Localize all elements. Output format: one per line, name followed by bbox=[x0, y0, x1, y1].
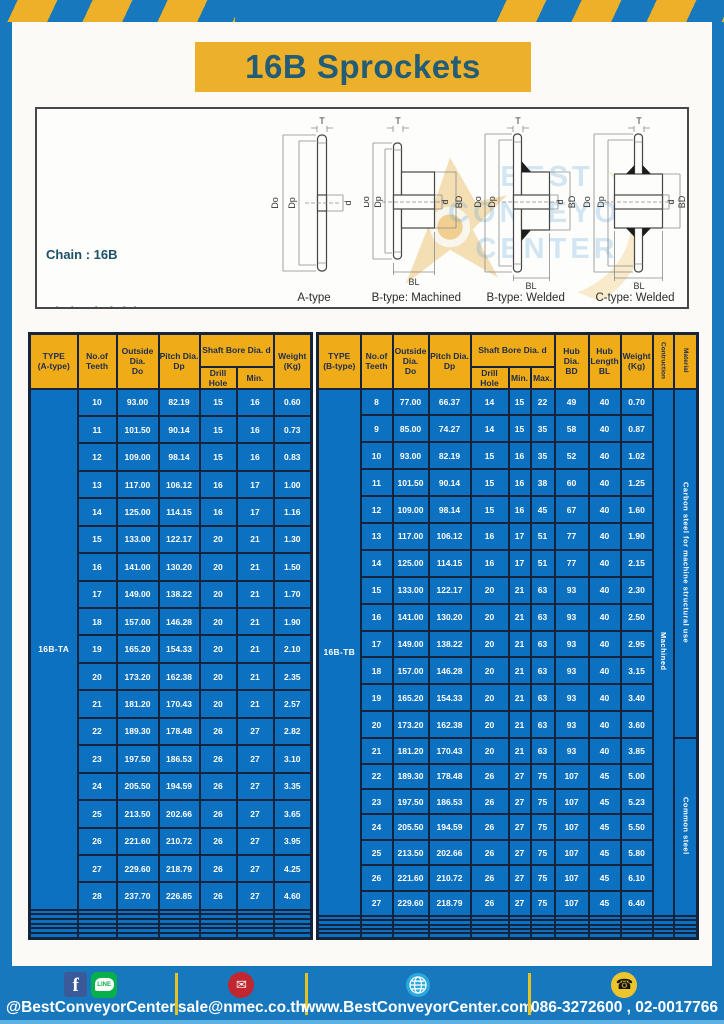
empty-row bbox=[318, 933, 698, 938]
table-cell: 106.12 bbox=[429, 523, 471, 550]
table-cell: 106.12 bbox=[159, 471, 200, 498]
table-cell: 77.00 bbox=[393, 389, 429, 416]
table-cell bbox=[274, 933, 312, 939]
table-cell: 15 bbox=[509, 415, 531, 442]
table-cell: 122.17 bbox=[159, 526, 200, 553]
table-cell: 27 bbox=[509, 865, 531, 890]
table-cell: 27 bbox=[361, 891, 393, 916]
table-cell: 21 bbox=[237, 608, 274, 635]
table-cell: 149.00 bbox=[117, 581, 159, 608]
table-cell: 93 bbox=[555, 631, 589, 658]
table-cell: 13 bbox=[361, 523, 393, 550]
table-cell: 40 bbox=[589, 738, 621, 763]
table-cell: 24 bbox=[78, 773, 117, 800]
table-cell: 14 bbox=[361, 550, 393, 577]
table-cell: 20 bbox=[200, 690, 237, 717]
table-cell: 27 bbox=[509, 814, 531, 839]
table-cell: 15 bbox=[509, 389, 531, 416]
table-cell: 2.15 bbox=[621, 550, 653, 577]
table-cell: 27 bbox=[237, 773, 274, 800]
email-contact: ✉ sale@nmec.co.th bbox=[178, 971, 305, 1017]
page-title: 16B Sprockets bbox=[245, 48, 481, 86]
table-cell: 1.25 bbox=[621, 469, 653, 496]
table-cell bbox=[30, 933, 78, 939]
table-cell: 26 bbox=[200, 855, 237, 882]
table-cell: 20 bbox=[200, 635, 237, 662]
table-cell bbox=[531, 933, 555, 938]
table-cell: 17 bbox=[509, 523, 531, 550]
table-cell: 26 bbox=[471, 840, 509, 865]
table-cell: 26 bbox=[78, 828, 117, 855]
dim-label: Do bbox=[270, 197, 280, 209]
table-cell: 75 bbox=[531, 764, 555, 789]
table-cell: 107 bbox=[555, 865, 589, 890]
table-cell: 6.10 bbox=[621, 865, 653, 890]
table-cell: 20 bbox=[471, 711, 509, 738]
table-cell: 117.00 bbox=[393, 523, 429, 550]
table-cell: 26 bbox=[200, 800, 237, 827]
table-cell: 63 bbox=[531, 631, 555, 658]
table-cell: 26 bbox=[200, 745, 237, 772]
table-row: 16141.00130.2020216393402.50 bbox=[318, 604, 698, 631]
col-header-hub-length: Hub Length BL bbox=[589, 334, 621, 389]
table-cell: 98.14 bbox=[159, 443, 200, 470]
page-sheet: 16B Sprockets Chain : 16B Chain Pitch (P… bbox=[12, 22, 712, 966]
table-cell: 2.57 bbox=[274, 690, 312, 717]
table-cell: 3.35 bbox=[274, 773, 312, 800]
table-cell: 154.33 bbox=[159, 635, 200, 662]
table-cell: 74.27 bbox=[429, 415, 471, 442]
table-cell: 20 bbox=[471, 738, 509, 763]
table-cell bbox=[509, 933, 531, 938]
table-cell: 146.28 bbox=[429, 657, 471, 684]
table-cell: 16 bbox=[78, 553, 117, 580]
col-header-hub-dia: Hub Dia. BD bbox=[555, 334, 589, 389]
table-cell: 75 bbox=[531, 891, 555, 916]
table-cell: 13 bbox=[78, 471, 117, 498]
construction-value: Machined bbox=[653, 389, 674, 917]
table-cell: 21 bbox=[509, 631, 531, 658]
table-cell: 75 bbox=[531, 814, 555, 839]
table-cell: 2.10 bbox=[274, 635, 312, 662]
table-cell: 20 bbox=[471, 577, 509, 604]
table-row: 27229.60218.79262775107456.40 bbox=[318, 891, 698, 916]
table-cell: 210.72 bbox=[429, 865, 471, 890]
table-cell: 4.60 bbox=[274, 882, 312, 909]
table-cell: 16 bbox=[237, 389, 274, 416]
table-cell: 24 bbox=[361, 814, 393, 839]
table-cell: 16 bbox=[237, 443, 274, 470]
table-cell: 38 bbox=[531, 469, 555, 496]
diagram-label: B-type: Machined bbox=[372, 292, 462, 304]
table-cell: 15 bbox=[471, 442, 509, 469]
table-cell: 157.00 bbox=[117, 608, 159, 635]
table-cell: 21 bbox=[237, 526, 274, 553]
table-cell: 93 bbox=[555, 738, 589, 763]
dim-label: BD bbox=[567, 195, 577, 208]
col-header-shaft-bore: Shaft Bore Dia. d bbox=[471, 334, 555, 367]
table-cell: 93 bbox=[555, 604, 589, 631]
b-type-machined-drawing: T Do Dp d BD BL bbox=[364, 115, 468, 291]
table-cell: 21 bbox=[509, 711, 531, 738]
diagram-label: A-type bbox=[297, 292, 330, 304]
table-cell: 8 bbox=[361, 389, 393, 416]
table-cell bbox=[471, 933, 509, 938]
table-cell: 1.30 bbox=[274, 526, 312, 553]
table-cell: 5.23 bbox=[621, 789, 653, 814]
col-header-type: TYPE (B-type) bbox=[318, 334, 361, 389]
diagram-b-type-machined: T Do Dp d BD BL bbox=[364, 115, 468, 309]
table-row: 14125.00114.1516175177402.15 bbox=[318, 550, 698, 577]
table-row: 23197.50186.53262775107455.23 bbox=[318, 789, 698, 814]
table-cell: 109.00 bbox=[393, 496, 429, 523]
table-cell: 3.10 bbox=[274, 745, 312, 772]
table-cell: 15 bbox=[471, 469, 509, 496]
table-cell: 45 bbox=[589, 891, 621, 916]
table-cell: 3.40 bbox=[621, 684, 653, 711]
table-cell: 18 bbox=[78, 608, 117, 635]
table-cell: 178.48 bbox=[159, 718, 200, 745]
dim-label: Do bbox=[364, 196, 371, 208]
line-bubble-label: LINE bbox=[95, 978, 114, 991]
table-cell: 107 bbox=[555, 789, 589, 814]
table-cell: 138.22 bbox=[159, 581, 200, 608]
col-header-weight: Weight (Kg) bbox=[621, 334, 653, 389]
table-cell: 23 bbox=[361, 789, 393, 814]
dim-label: T bbox=[319, 116, 325, 126]
table-cell: 27 bbox=[78, 855, 117, 882]
table-cell: 3.15 bbox=[621, 657, 653, 684]
table-cell: 5.00 bbox=[621, 764, 653, 789]
table-cell: 27 bbox=[509, 891, 531, 916]
table-cell: 35 bbox=[531, 415, 555, 442]
table-cell: 45 bbox=[589, 865, 621, 890]
table-cell: 58 bbox=[555, 415, 589, 442]
table-cell: 20 bbox=[361, 711, 393, 738]
table-cell: 22 bbox=[78, 718, 117, 745]
social-contact: f LINE @BestConveyorCenter bbox=[6, 971, 175, 1017]
table-cell: 93 bbox=[555, 577, 589, 604]
table-cell: 1.02 bbox=[621, 442, 653, 469]
table-cell: 194.59 bbox=[159, 773, 200, 800]
table-cell: 11 bbox=[361, 469, 393, 496]
table-cell: 170.43 bbox=[429, 738, 471, 763]
table-cell: 21 bbox=[237, 635, 274, 662]
table-cell: 21 bbox=[237, 663, 274, 690]
table-cell: 178.48 bbox=[429, 764, 471, 789]
phone-icon: ☎ bbox=[611, 972, 637, 998]
table-cell: 45 bbox=[589, 789, 621, 814]
table-cell: 15 bbox=[361, 577, 393, 604]
table-cell: 77 bbox=[555, 550, 589, 577]
table-cell: 40 bbox=[589, 523, 621, 550]
table-cell: 85.00 bbox=[393, 415, 429, 442]
diagram-c-type-welded: T Do Dp d bbox=[583, 115, 687, 309]
col-header-max: Max. bbox=[531, 367, 555, 389]
table-cell bbox=[237, 933, 274, 939]
table-cell: 154.33 bbox=[429, 684, 471, 711]
table-cell: 1.16 bbox=[274, 498, 312, 525]
table-cell: 186.53 bbox=[159, 745, 200, 772]
table-cell: 4.25 bbox=[274, 855, 312, 882]
col-header-teeth: No.of Teeth bbox=[361, 334, 393, 389]
diagram-label: C-type: Welded bbox=[595, 292, 674, 304]
spec-line: Chain : 16B bbox=[46, 245, 263, 264]
table-cell: 218.79 bbox=[159, 855, 200, 882]
table-cell: 40 bbox=[589, 496, 621, 523]
table-cell: 45 bbox=[589, 840, 621, 865]
table-cell: 40 bbox=[589, 469, 621, 496]
table-row: 18157.00146.2820216393403.15 bbox=[318, 657, 698, 684]
col-header-construction: Contruction bbox=[653, 334, 674, 389]
dim-label: BL bbox=[633, 281, 644, 291]
dim-label: d bbox=[343, 200, 353, 205]
table-cell bbox=[555, 933, 589, 938]
table-cell: 16 bbox=[361, 604, 393, 631]
table-cell: 122.17 bbox=[429, 577, 471, 604]
table-cell: 114.15 bbox=[159, 498, 200, 525]
table-cell: 181.20 bbox=[393, 738, 429, 763]
table-cell: 1.00 bbox=[274, 471, 312, 498]
table-cell: 20 bbox=[200, 663, 237, 690]
table-cell: 22 bbox=[361, 764, 393, 789]
col-header-pitch-dia: Pitch Dia. Dp bbox=[159, 334, 200, 389]
table-cell: 226.85 bbox=[159, 882, 200, 909]
table-cell: 12 bbox=[78, 443, 117, 470]
table-cell: 20 bbox=[200, 608, 237, 635]
table-cell: 146.28 bbox=[159, 608, 200, 635]
a-type-table: TYPE (A-type) No.of Teeth Outside Dia. D… bbox=[28, 332, 313, 940]
table-row: 22189.30178.48262775107455.00 bbox=[318, 764, 698, 789]
table-cell: 45 bbox=[589, 764, 621, 789]
table-cell: 93.00 bbox=[117, 389, 159, 416]
footer-contact-bar: f LINE @BestConveyorCenter ✉ sale@nmec.c… bbox=[0, 966, 724, 1024]
table-cell: 20 bbox=[78, 663, 117, 690]
table-cell: 189.30 bbox=[117, 718, 159, 745]
table-cell: 5.50 bbox=[621, 814, 653, 839]
table-cell: 17 bbox=[237, 471, 274, 498]
table-row: 17149.00138.2220216393402.95 bbox=[318, 631, 698, 658]
table-cell: 63 bbox=[531, 604, 555, 631]
top-border-bar bbox=[0, 0, 724, 22]
table-cell: 40 bbox=[589, 415, 621, 442]
table-cell: 213.50 bbox=[393, 840, 429, 865]
phone-numbers: 086-3272600 , 02-0017766 bbox=[531, 999, 718, 1017]
table-cell bbox=[361, 933, 393, 938]
table-cell: 189.30 bbox=[393, 764, 429, 789]
table-cell: 26 bbox=[471, 865, 509, 890]
table-cell bbox=[117, 933, 159, 939]
table-cell: 197.50 bbox=[117, 745, 159, 772]
table-cell: 40 bbox=[589, 577, 621, 604]
table-cell: 0.83 bbox=[274, 443, 312, 470]
table-cell: 93 bbox=[555, 711, 589, 738]
table-cell: 40 bbox=[589, 442, 621, 469]
table-cell: 60 bbox=[555, 469, 589, 496]
table-cell: 1.90 bbox=[274, 608, 312, 635]
table-cell: 141.00 bbox=[393, 604, 429, 631]
table-cell: 2.95 bbox=[621, 631, 653, 658]
table-cell: 51 bbox=[531, 550, 555, 577]
phone-contact: ☎ 086-3272600 , 02-0017766 bbox=[531, 971, 718, 1017]
table-cell: 63 bbox=[531, 711, 555, 738]
table-cell: 27 bbox=[237, 718, 274, 745]
table-cell: 98.14 bbox=[429, 496, 471, 523]
table-cell: 221.60 bbox=[393, 865, 429, 890]
dim-label: BD bbox=[454, 195, 464, 208]
table-cell: 1.90 bbox=[621, 523, 653, 550]
table-cell: 14 bbox=[471, 415, 509, 442]
table-cell: 3.65 bbox=[274, 800, 312, 827]
social-handle: @BestConveyorCenter bbox=[6, 999, 175, 1017]
dim-label: BL bbox=[409, 277, 420, 287]
table-cell: 19 bbox=[361, 684, 393, 711]
table-cell: 16 bbox=[200, 498, 237, 525]
table-cell: 162.38 bbox=[159, 663, 200, 690]
table-cell: 27 bbox=[237, 745, 274, 772]
type-label: 16B-TA bbox=[30, 389, 78, 910]
table-cell: 26 bbox=[471, 814, 509, 839]
table-cell: 117.00 bbox=[117, 471, 159, 498]
table-cell: 26 bbox=[200, 773, 237, 800]
table-cell: 52 bbox=[555, 442, 589, 469]
table-row: 985.0074.2714153558400.87 bbox=[318, 415, 698, 442]
table-cell: 26 bbox=[471, 891, 509, 916]
table-cell: 45 bbox=[531, 496, 555, 523]
table-row: 25213.50202.66262775107455.80 bbox=[318, 840, 698, 865]
table-cell: 20 bbox=[200, 526, 237, 553]
table-cell: 15 bbox=[200, 389, 237, 416]
table-cell bbox=[318, 933, 361, 938]
table-cell: 130.20 bbox=[429, 604, 471, 631]
table-cell: 173.20 bbox=[117, 663, 159, 690]
col-header-teeth: No.of Teeth bbox=[78, 334, 117, 389]
material-value: Carbon steel for machine structural use bbox=[674, 389, 698, 739]
table-cell: 82.19 bbox=[159, 389, 200, 416]
table-cell: 26 bbox=[471, 764, 509, 789]
table-cell: 2.82 bbox=[274, 718, 312, 745]
table-cell bbox=[159, 933, 200, 939]
table-cell: 26 bbox=[471, 789, 509, 814]
col-header-type: TYPE (A-type) bbox=[30, 334, 78, 389]
table-cell: 18 bbox=[361, 657, 393, 684]
table-cell: 28 bbox=[78, 882, 117, 909]
dim-label: T bbox=[396, 116, 402, 126]
table-row: 21181.20170.4320216393403.85Common steel bbox=[318, 738, 698, 763]
dim-label: Do bbox=[583, 196, 592, 208]
table-cell: 210.72 bbox=[159, 828, 200, 855]
table-cell: 20 bbox=[200, 553, 237, 580]
table-cell: 16 bbox=[509, 469, 531, 496]
table-cell: 149.00 bbox=[393, 631, 429, 658]
table-cell bbox=[200, 933, 237, 939]
table-cell: 16 bbox=[509, 442, 531, 469]
table-cell: 21 bbox=[361, 738, 393, 763]
table-cell: 21 bbox=[509, 657, 531, 684]
table-cell: 40 bbox=[589, 389, 621, 416]
table-cell: 15 bbox=[471, 496, 509, 523]
table-cell: 133.00 bbox=[393, 577, 429, 604]
table-cell: 51 bbox=[531, 523, 555, 550]
table-cell: 14 bbox=[78, 498, 117, 525]
table-cell: 194.59 bbox=[429, 814, 471, 839]
table-cell: 67 bbox=[555, 496, 589, 523]
table-cell: 3.95 bbox=[274, 828, 312, 855]
b-type-welded-drawing: T Do Dp d BD bbox=[474, 115, 578, 291]
table-cell: 90.14 bbox=[429, 469, 471, 496]
bottom-accent-strip bbox=[0, 1020, 724, 1024]
table-cell: 1.50 bbox=[274, 553, 312, 580]
table-cell: 21 bbox=[509, 684, 531, 711]
dim-label: Do bbox=[474, 196, 483, 208]
table-cell: 12 bbox=[361, 496, 393, 523]
table-cell: 75 bbox=[531, 840, 555, 865]
table-cell: 21 bbox=[509, 577, 531, 604]
table-cell: 20 bbox=[471, 631, 509, 658]
table-cell: 0.73 bbox=[274, 416, 312, 443]
table-cell: 2.50 bbox=[621, 604, 653, 631]
table-cell: 21 bbox=[237, 581, 274, 608]
table-cell: 45 bbox=[589, 814, 621, 839]
table-cell: 22 bbox=[531, 389, 555, 416]
dim-label: Dp bbox=[373, 196, 383, 208]
table-cell: 26 bbox=[200, 882, 237, 909]
dim-label: BL bbox=[525, 281, 536, 291]
table-cell: 17 bbox=[509, 550, 531, 577]
spec-line: Chain Pitch (P) : 25.4 bbox=[46, 302, 263, 309]
table-cell: 221.60 bbox=[117, 828, 159, 855]
website-contact: www.BestConveyorCenter.com bbox=[308, 971, 529, 1017]
table-cell: 93.00 bbox=[393, 442, 429, 469]
a-type-drawing: T Do Dp d bbox=[269, 115, 359, 291]
table-cell: 213.50 bbox=[117, 800, 159, 827]
table-cell: 15 bbox=[78, 526, 117, 553]
line-icon: LINE bbox=[91, 972, 117, 998]
table-cell: 162.38 bbox=[429, 711, 471, 738]
table-cell: 77 bbox=[555, 523, 589, 550]
table-cell: 63 bbox=[531, 738, 555, 763]
table-cell: 27 bbox=[509, 840, 531, 865]
table-cell: 237.70 bbox=[117, 882, 159, 909]
table-cell: 14 bbox=[471, 389, 509, 416]
table-cell: 93 bbox=[555, 657, 589, 684]
table-cell: 16 bbox=[509, 496, 531, 523]
diagram-b-type-welded: T Do Dp d BD bbox=[474, 115, 578, 309]
dim-label: BD bbox=[677, 195, 687, 208]
table-cell: 165.20 bbox=[117, 635, 159, 662]
table-cell: 25 bbox=[361, 840, 393, 865]
table-cell: 21 bbox=[509, 604, 531, 631]
table-cell: 3.85 bbox=[621, 738, 653, 763]
table-cell: 107 bbox=[555, 840, 589, 865]
table-cell: 93 bbox=[555, 684, 589, 711]
table-cell: 197.50 bbox=[393, 789, 429, 814]
table-cell: 0.70 bbox=[621, 389, 653, 416]
table-cell: 138.22 bbox=[429, 631, 471, 658]
table-cell: 26 bbox=[200, 718, 237, 745]
table-cell: 17 bbox=[361, 631, 393, 658]
table-cell: 186.53 bbox=[429, 789, 471, 814]
table-cell: 130.20 bbox=[159, 553, 200, 580]
table-cell: 2.30 bbox=[621, 577, 653, 604]
table-cell: 101.50 bbox=[393, 469, 429, 496]
col-header-pitch-dia: Pitch Dia. Dp bbox=[429, 334, 471, 389]
dim-label: T bbox=[515, 116, 521, 126]
table-cell: 17 bbox=[237, 498, 274, 525]
table-cell: 25 bbox=[78, 800, 117, 827]
table-row: 19165.20154.3320216393403.40 bbox=[318, 684, 698, 711]
table-cell: 16 bbox=[471, 523, 509, 550]
